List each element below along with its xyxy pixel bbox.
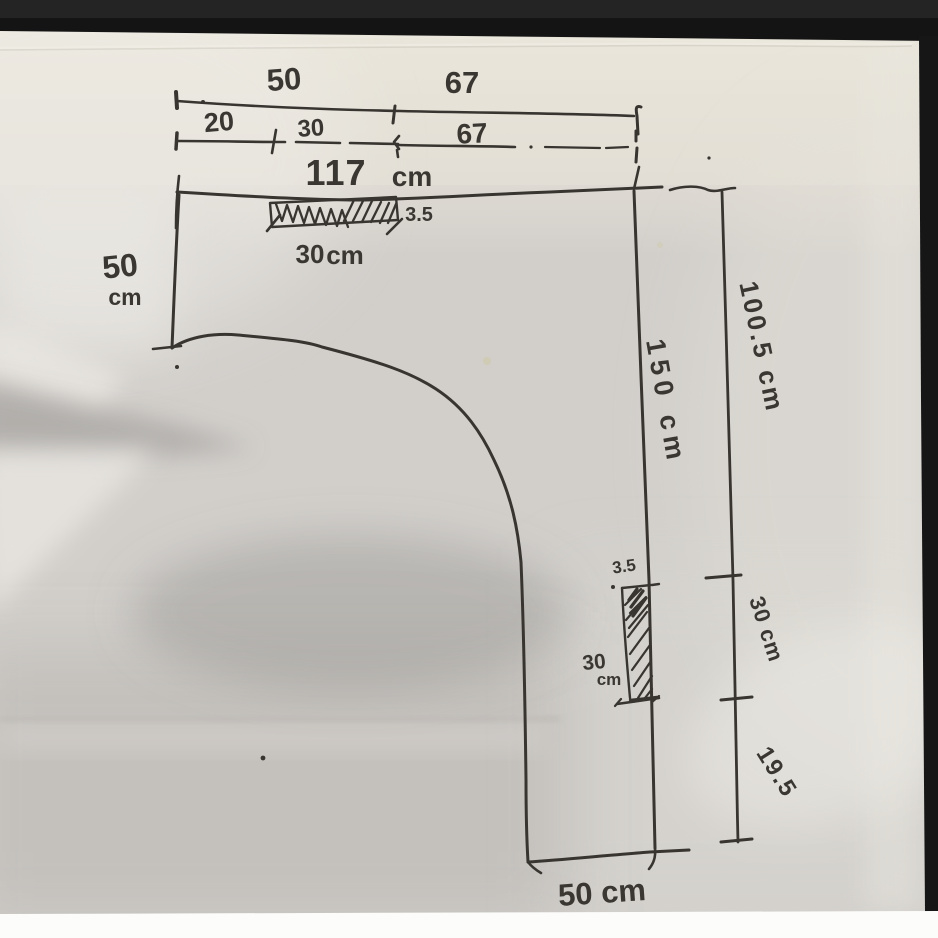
svg-text:cm: cm [108,284,141,310]
svg-text:3.5: 3.5 [405,204,433,226]
svg-text:3.5: 3.5 [611,555,637,577]
svg-text:cm: cm [392,161,432,192]
svg-text:150 cm: 150 cm [640,337,692,468]
svg-text:50: 50 [100,246,139,286]
svg-text:cm: cm [597,670,622,689]
svg-text:117: 117 [305,152,366,193]
svg-text:67: 67 [445,65,479,100]
svg-text:50: 50 [266,61,303,98]
svg-text:50 cm: 50 cm [557,872,647,913]
svg-text:cm: cm [326,240,364,270]
svg-text:30: 30 [296,239,325,269]
svg-text:20: 20 [203,106,236,139]
svg-text:30: 30 [297,114,326,143]
svg-text:67: 67 [456,117,489,150]
